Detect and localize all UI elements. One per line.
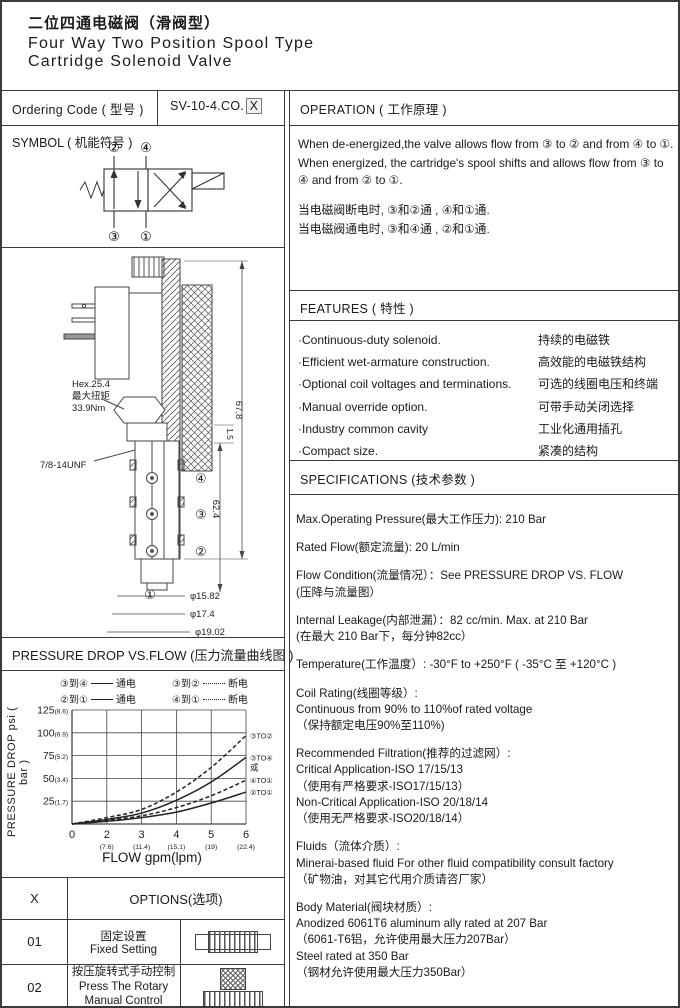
feature-row: ·Continuous-duty solenoid.持续的电磁铁 (298, 329, 676, 351)
svg-text:3: 3 (139, 829, 145, 841)
spec-line: Internal Leakage(内部泄漏）：82 cc/min. Max. a… (296, 613, 678, 629)
spec-line: Non-Critical Application-ISO 20/18/14 (296, 795, 678, 811)
spec-item: Flow Condition(流量情况）：See PRESSURE DROP V… (296, 568, 678, 600)
spec-line: Recommended Filtration(推荐的过滤网）: (296, 746, 678, 762)
legend-line-sample (91, 699, 113, 700)
spec-line: （钢材允许使用最大压力350Bar） (296, 965, 678, 981)
operation-paragraph: When energized, the cartridge's spool sh… (298, 155, 676, 189)
dia-17-4: φ17.4 (190, 609, 215, 620)
option-row-02-label: 按压旋转式手动控制Press The RotaryManual Control (67, 964, 180, 1008)
option-row-02-code: 02 (2, 964, 67, 1008)
chart-y-axis-title: PRESSURE DROP psi ( bar ) (6, 702, 30, 842)
spec-line: Body Material(阀块材质）: (296, 900, 678, 916)
chart-curve (72, 736, 246, 824)
curve-label-or: 或 (250, 762, 259, 772)
spec-line: Critical Application-ISO 17/15/13 (296, 762, 678, 778)
dia-15-82: φ15.82 (190, 591, 220, 602)
hex-note-line2: 最大扭矩 (72, 390, 111, 402)
option-01-cn: 固定设置 (90, 928, 157, 944)
fixed-setting-icon-stripes (208, 931, 258, 953)
option-row-01-icon-cell (180, 919, 285, 964)
ordering-code-label: Ordering Code ( 型号 ) (12, 99, 144, 118)
ordering-code-value: SV-10-4.CO.X (170, 99, 262, 113)
option-row-01-code: 01 (2, 919, 67, 964)
divider (2, 637, 285, 638)
svg-text:6: 6 (243, 829, 249, 841)
operation-text: When de-energized,the valve allows flow … (298, 136, 676, 240)
operation-paragraph: 当电磁阀断电时, ③和②通 , ④和①通. (298, 202, 676, 219)
divider (157, 90, 158, 125)
spec-item: Rated Flow(额定流量): 20 L/min (296, 540, 678, 556)
feature-en: ·Industry common cavity (298, 418, 428, 440)
spec-line: Continuous from 90% to 110%of rated volt… (296, 702, 678, 718)
spec-item: Internal Leakage(内部泄漏）：82 cc/min. Max. a… (296, 613, 678, 645)
feature-row: ·Efficient wet-armature construction.高效能… (298, 351, 676, 373)
legend-line-sample (203, 683, 225, 684)
svg-text:0: 0 (69, 829, 75, 841)
hex-note-line3: 33.9Nm (72, 403, 105, 414)
spec-line: （使用无严格要求-ISO20/18/14） (296, 811, 678, 827)
spec-line: （使用有严格要求-ISO17/15/13） (296, 779, 678, 795)
specifications-list: Max.Operating Pressure(最大工作压力): 210 BarR… (296, 512, 678, 993)
pressure-drop-title: PRESSURE DROP VS.FLOW (压力流量曲线图 ) (12, 645, 293, 664)
legend-pair: ③到④ (60, 679, 88, 690)
spec-line: （保持额定电压90%至110%) (296, 718, 678, 734)
ordering-code-variant: X (246, 98, 262, 114)
option-row-01-label: 固定设置Fixed Setting (67, 919, 180, 964)
legend-item: ③到④通电 (60, 675, 172, 690)
divider (2, 670, 285, 671)
feature-cn: 可带手动关闭选择 (538, 396, 676, 418)
pressure-drop-chart: 25(1.7)50(3.4)75(5.2)100(6.9)125(8.6)02(… (32, 702, 284, 852)
feature-cn: 持续的电磁铁 (538, 329, 676, 351)
feature-cn: 可选的线圈电压和终端 (538, 373, 676, 395)
feature-row: ·Optional coil voltages and terminations… (298, 373, 676, 395)
page-title-cn: 二位四通电磁阀（滑阀型） (28, 12, 314, 33)
divider (2, 125, 285, 126)
spec-line: （6061-T6铝，允许使用最大压力207Bar） (296, 932, 678, 948)
feature-cn: 紧凑的结构 (538, 440, 676, 462)
svg-text:2: 2 (104, 829, 110, 841)
ordering-code-text: SV-10-4.CO. (170, 99, 244, 113)
dim-67-8: 67.8 (233, 401, 244, 420)
spec-line: Flow Condition(流量情况）：See PRESSURE DROP V… (296, 568, 678, 584)
curve-label: ④TO① (250, 776, 273, 785)
spec-item: Body Material(阀块材质）:Anodized 6061T6 alum… (296, 900, 678, 981)
specifications-title: SPECIFICATIONS (技术参数 ) (300, 469, 475, 488)
legend-line-sample (203, 699, 225, 700)
divider (2, 90, 678, 91)
features-title: FEATURES ( 特性 ) (300, 298, 414, 317)
rotary-knob-icon (203, 968, 263, 1007)
symbol-port-4: ④ (140, 140, 152, 155)
options-header-x: X (2, 877, 67, 919)
spec-line: Anodized 6061T6 aluminum ally rated at 2… (296, 916, 678, 932)
fixed-setting-icon (195, 934, 271, 950)
spec-line: Steel rated at 350 Bar (296, 949, 678, 965)
symbol-port-3: ③ (108, 229, 120, 244)
spec-line: (在最大 210 Bar下，每分钟82cc） (296, 629, 678, 645)
dim-62-4: 62.4 (210, 500, 221, 519)
legend-line-sample (91, 683, 113, 684)
title-block: 二位四通电磁阀（滑阀型） Four Way Two Position Spool… (28, 12, 314, 71)
symbol-body (80, 156, 224, 228)
dim-1-5: 1.5 (225, 428, 235, 440)
datasheet-page: 二位四通电磁阀（滑阀型） Four Way Two Position Spool… (0, 0, 680, 1008)
legend-item: ③到②断电 (172, 675, 284, 690)
svg-text:100(6.9): 100(6.9) (37, 727, 68, 739)
spec-item: Fluids（流体介质）:Minerai-based fluid For oth… (296, 839, 678, 888)
chart-x-axis-title: FLOW gpm(lpm) (62, 850, 242, 865)
feature-row: ·Manual override option.可带手动关闭选择 (298, 396, 676, 418)
legend-state: 断电 (228, 679, 248, 690)
drawing-port-3: ③ (195, 507, 207, 522)
divider (290, 494, 678, 495)
operation-paragraph: 当电磁阀通电时, ③和④通 , ②和①通. (298, 221, 676, 238)
dia-19-02: φ19.02 (195, 627, 225, 637)
drawing-port-1: ① (144, 587, 156, 602)
spec-line: （矿物油，对其它代用介质请咨厂家） (296, 872, 678, 888)
option-row-02-icon-cell (180, 964, 285, 1008)
spec-line: Temperature(工作温度）: -30°F to +250°F ( -35… (296, 657, 678, 673)
spec-line: Coil Rating(线圈等级）: (296, 686, 678, 702)
valve-cross-section-drawing: Hex.25.4 最大扭矩 33.9Nm 7/8-14UNF 67.8 62.4… (2, 247, 285, 637)
option-02-en2: Manual Control (72, 994, 176, 1008)
features-list: ·Continuous-duty solenoid.持续的电磁铁·Efficie… (298, 329, 676, 462)
divider (290, 125, 678, 126)
rotary-knob-icon-top (220, 968, 246, 990)
drawing-port-2: ② (195, 544, 207, 559)
spec-item: Recommended Filtration(推荐的过滤网）:Critical … (296, 746, 678, 827)
hydraulic-symbol-diagram: ② ④ ③ ① (42, 129, 278, 245)
feature-row: ·Compact size.紧凑的结构 (298, 440, 676, 462)
feature-en: ·Continuous-duty solenoid. (298, 329, 441, 351)
hex-note-line1: Hex.25.4 (72, 379, 110, 390)
curve-label: ③TO② (250, 732, 273, 741)
operation-title: OPERATION ( 工作原理 ) (300, 99, 447, 118)
symbol-port-1: ① (140, 229, 152, 244)
feature-row: ·Industry common cavity工业化通用插孔 (298, 418, 676, 440)
svg-text:50(3.4): 50(3.4) (43, 773, 68, 785)
spec-item: Temperature(工作温度）: -30°F to +250°F ( -35… (296, 657, 678, 673)
symbol-port-2: ② (108, 140, 120, 155)
option-02-en: Press The Rotary (72, 980, 176, 994)
drawing-dim-arrows (218, 261, 245, 592)
spec-line: Fluids（流体介质）: (296, 839, 678, 855)
svg-text:125(8.6): 125(8.6) (37, 705, 68, 717)
curve-label: ②TO① (250, 788, 273, 797)
svg-text:5: 5 (208, 829, 214, 841)
spec-item: Max.Operating Pressure(最大工作压力): 210 Bar (296, 512, 678, 528)
svg-text:4: 4 (173, 829, 179, 841)
chart-curve (72, 757, 246, 824)
spec-item: Coil Rating(线圈等级）:Continuous from 90% to… (296, 686, 678, 735)
drawing-port-4: ④ (195, 471, 207, 486)
feature-cn: 高效能的电磁铁结构 (538, 351, 676, 373)
thread-label: 7/8-14UNF (40, 460, 87, 471)
curve-label: ③TO④ (250, 753, 273, 762)
options-header-label: OPTIONS(选项) (67, 877, 285, 919)
spec-line: Minerai-based fluid For other fluid comp… (296, 856, 678, 872)
divider (290, 290, 678, 291)
feature-en: ·Efficient wet-armature construction. (298, 351, 490, 373)
legend-state: 通电 (116, 679, 136, 690)
spec-line: Rated Flow(额定流量): 20 L/min (296, 540, 678, 556)
svg-text:75(5.2): 75(5.2) (43, 750, 68, 762)
legend-pair: ③到② (172, 679, 200, 690)
chart-curve (72, 780, 246, 824)
rotary-knob-icon-base (203, 991, 263, 1007)
spec-line: (压降与流量图） (296, 585, 678, 601)
page-title-en-1: Four Way Two Position Spool Type (28, 35, 314, 53)
feature-en: ·Compact size. (298, 440, 378, 462)
feature-cn: 工业化通用插孔 (538, 418, 676, 440)
divider (290, 320, 678, 321)
page-title-en-2: Cartridge Solenoid Valve (28, 53, 314, 71)
feature-en: ·Manual override option. (298, 396, 427, 418)
svg-text:25(1.7): 25(1.7) (43, 796, 68, 808)
option-02-cn: 按压旋转式手动控制 (72, 965, 176, 979)
option-01-en: Fixed Setting (90, 944, 157, 956)
operation-paragraph: When de-energized,the valve allows flow … (298, 136, 676, 153)
spec-line: Max.Operating Pressure(最大工作压力): 210 Bar (296, 512, 678, 528)
feature-en: ·Optional coil voltages and terminations… (298, 373, 511, 395)
